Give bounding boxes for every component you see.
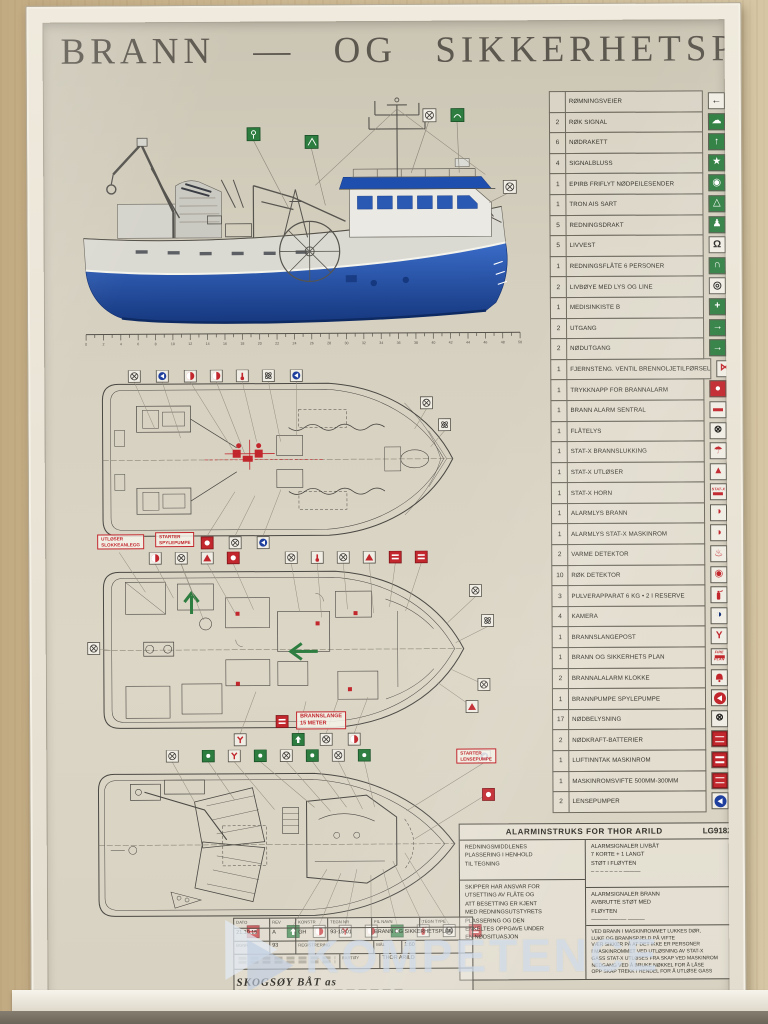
ship-profile-drawing: 0246810121416182022242628303234363840424… bbox=[57, 88, 550, 353]
legend-count: 2 bbox=[551, 339, 567, 359]
legend-row: 1ALARMLYS BRANN◑ bbox=[551, 503, 727, 525]
header-fil-navn: FIL NAVN bbox=[372, 918, 420, 927]
superstructure bbox=[315, 97, 496, 237]
svg-text:42: 42 bbox=[449, 341, 453, 345]
legend-row: 2RØK SIGNAL☁ bbox=[549, 112, 725, 134]
legend-label: PULVERAPPARAT 6 KG • 2 I RESERVE bbox=[568, 586, 704, 606]
alarm-cell-lifeboat-signals: ALARMSIGNALER LIVBÅT 7 KORTE + 1 LANGT S… bbox=[586, 839, 730, 888]
legend-count: 1 bbox=[551, 257, 567, 277]
deck-plan-main: UTLØSER SLOKKEANLEGG STARTER SPYLEPUMPE … bbox=[85, 550, 506, 748]
signal-flare-icon: ★ bbox=[708, 154, 725, 171]
legend-label: FLÅTELYS bbox=[568, 421, 704, 441]
legend-row: 6NØDRAKETT↑ bbox=[549, 132, 725, 154]
poster: BRANN — OG SIKKERHETSPLAN bbox=[42, 19, 729, 997]
emergency-light-icon: ⊗ bbox=[711, 710, 728, 727]
svg-text:4: 4 bbox=[120, 342, 122, 346]
header-mal: MÅL bbox=[374, 941, 402, 953]
legend-row: 1MASKINROMSVIFTE 500MM-300MM bbox=[552, 771, 728, 793]
legend-count: 1 bbox=[553, 751, 569, 771]
ais-sart-icon: △ bbox=[708, 195, 725, 212]
lifejacket-icon: Ω bbox=[709, 236, 726, 253]
legend-count: 1 bbox=[552, 525, 568, 545]
legend-row: 10RØK DETEKTOR◉ bbox=[551, 565, 727, 587]
header-fartoy: FARTØY bbox=[340, 954, 380, 968]
legend-count: 1 bbox=[550, 195, 566, 215]
legend-count: 2 bbox=[553, 792, 569, 812]
legend-label: NØDUTGANG bbox=[567, 338, 703, 358]
legend-row: 2BRANNALALARM KLOKKE bbox=[552, 668, 728, 690]
legend-row: 2NØDUTGANG→ bbox=[550, 338, 726, 360]
legend-row: 2UTGANG→ bbox=[550, 318, 726, 340]
statx-horn-icon: STAT-X bbox=[710, 483, 727, 500]
window-sill bbox=[12, 990, 768, 1012]
alarm-cell-skipper-responsibility: SKIPPER HAR ANSVAR FOR UTSETTING AV FLÅT… bbox=[460, 880, 586, 980]
lifebuoy-icon: ◎ bbox=[709, 278, 726, 295]
emergency-exit-icon: → bbox=[709, 339, 726, 356]
legend-label: BRANNSLANGEPOST bbox=[569, 627, 705, 647]
smoke-signal-icon: ☁ bbox=[708, 113, 725, 130]
legend-count: 1 bbox=[552, 463, 568, 483]
legend-row: 1STAT-X BRANNSLUKKING☂ bbox=[551, 441, 727, 463]
legend-label: UTGANG bbox=[567, 318, 703, 338]
legend-row: 1STAT-X UTLØSER▲ bbox=[551, 462, 727, 484]
bilge-pump-icon bbox=[711, 792, 728, 809]
svg-text:8: 8 bbox=[155, 342, 157, 346]
svg-text:26: 26 bbox=[310, 341, 314, 345]
legend-row: 2LENSEPUMPER bbox=[552, 791, 728, 813]
header-tegn-nr: TEGN NR bbox=[328, 918, 372, 927]
raft-light-icon: ⊗ bbox=[710, 422, 727, 439]
legend-count: 2 bbox=[551, 277, 567, 297]
legend-count: 2 bbox=[553, 730, 569, 750]
immersion-suit-icon: ♟ bbox=[708, 216, 725, 233]
leader-lines bbox=[134, 381, 445, 537]
legend-count: 1 bbox=[552, 442, 568, 462]
svg-text:12: 12 bbox=[188, 342, 192, 346]
legend-count: 1 bbox=[551, 380, 567, 400]
svg-text:20: 20 bbox=[258, 342, 262, 346]
legend-count: 1 bbox=[550, 174, 566, 194]
liferaft-icon: ∩ bbox=[709, 257, 726, 274]
svg-text:16: 16 bbox=[223, 342, 227, 346]
scale-ruler: 0246810121416182022242628303234363840424… bbox=[85, 332, 522, 346]
svg-text:30: 30 bbox=[345, 341, 349, 345]
smoke-detector-icon: ◉ bbox=[710, 566, 727, 583]
exit-sign-icon: → bbox=[709, 319, 726, 336]
callout-starter-lensepumpe: STARTER LENSEPUMPE bbox=[456, 748, 496, 764]
legend-label: RØMNINGSVEIER bbox=[566, 91, 702, 111]
legend-label: STAT-X UTLØSER bbox=[568, 462, 704, 482]
legend-count: 2 bbox=[552, 545, 568, 565]
legend-row: 1BRANN ALARM SENTRAL▬ bbox=[550, 400, 726, 422]
alarm-cell-engine-room-fire: VED BRANN I MASKINROMMET LUKKES DØR, LUK… bbox=[586, 925, 729, 979]
value-bgnr: 93 bbox=[270, 941, 296, 953]
builder-address-lines bbox=[234, 954, 340, 969]
header-rev: REV bbox=[270, 918, 296, 927]
fire-hose-station-icon: Y bbox=[711, 628, 728, 645]
emergency-battery-icon bbox=[711, 731, 728, 748]
legend-count: 1 bbox=[552, 422, 568, 442]
first-aid-kit-icon: + bbox=[709, 298, 726, 315]
fire-plan-icon: FIREPLAN bbox=[711, 648, 728, 665]
legend-row: 1REDNINGSFLÅTE 6 PERSONER∩ bbox=[550, 256, 726, 278]
value-tegn-nr: 93-15-01 bbox=[328, 928, 372, 940]
legend-row: 2LIVBØYE MED LYS OG LINE◎ bbox=[550, 277, 726, 299]
deck-plan-lower bbox=[84, 368, 485, 550]
value-fil-navn: BRANN OG SIKKERHETSPLAN bbox=[372, 928, 472, 941]
fuel-shutoff-valve-icon: ⋈ bbox=[717, 360, 730, 377]
alarm-instructions-box: ALARMINSTRUKS FOR THOR ARILD LG9182 REDN… bbox=[459, 822, 730, 980]
legend-row: 1MEDISINKISTE B+ bbox=[550, 297, 726, 319]
legend-row: 2VARME DETEKTOR♨ bbox=[551, 544, 727, 566]
legend-count: 3 bbox=[552, 586, 568, 606]
legend-row: 1BRANNPUMPE SPYLEPUMPE bbox=[552, 688, 728, 710]
title-block: DATO REV KONSTR TEGN NR FIL NAVN TEGN TY… bbox=[233, 917, 473, 997]
legend-count: 1 bbox=[552, 483, 568, 503]
fire-alarm-bell-icon bbox=[711, 669, 728, 686]
header-konstr: KONSTR bbox=[296, 918, 328, 927]
value-fartoy: THOR ARILD bbox=[380, 954, 472, 968]
value-dato: 21.10.15 bbox=[234, 929, 270, 941]
legend-row: 5REDNINGSDRAKT♟ bbox=[549, 215, 725, 237]
svg-text:36: 36 bbox=[397, 341, 401, 345]
svg-text:2: 2 bbox=[102, 342, 104, 346]
legend-label: ALARMLYS BRANN bbox=[568, 503, 704, 523]
legend-row: 1ALARMLYS STAT-X MASKINROM◑ bbox=[551, 524, 727, 546]
fire-alarm-panel-icon: ▬ bbox=[709, 401, 726, 418]
callout-utloser-slokkeanlegg: UTLØSER SLOKKEANLEGG bbox=[97, 534, 144, 550]
legend-count: 1 bbox=[553, 627, 569, 647]
svg-text:14: 14 bbox=[206, 342, 210, 346]
camera-icon: ◑ bbox=[711, 607, 728, 624]
air-intake-icon bbox=[711, 751, 728, 768]
legend-row: 1TRYKKNAPP FOR BRANNALARM● bbox=[550, 380, 726, 402]
legend-row: 1FJERNSTENG. VENTIL BRENNOLJETILFØRSEL⋈ bbox=[550, 359, 726, 381]
sill-shadow bbox=[0, 1011, 768, 1024]
legend-count: 10 bbox=[552, 566, 568, 586]
legend-label: NØDKRAFT-BATTERIER bbox=[569, 730, 705, 750]
legend-label: LUFTINNTAK MASKINROM bbox=[569, 750, 705, 770]
legend-label: REDNINGSDRAKT bbox=[566, 215, 702, 235]
legend-label: BRANN OG SIKKERHETS PLAN bbox=[569, 647, 705, 667]
legend-label: KAMERA bbox=[569, 606, 705, 626]
legend-row: 1LUFTINNTAK MASKINROM bbox=[552, 750, 728, 772]
svg-text:38: 38 bbox=[414, 341, 418, 345]
legend-count: 1 bbox=[551, 360, 567, 380]
legend-label: LIVBØYE MED LYS OG LINE bbox=[567, 277, 703, 297]
engine-room-fan-icon bbox=[711, 772, 728, 789]
legend-count: 1 bbox=[551, 298, 567, 318]
legend-count bbox=[550, 92, 566, 112]
callout-brannslange: BRANNSLANGE 15 METER bbox=[296, 711, 346, 729]
legend-row: 1STAT-X HORNSTAT-X bbox=[551, 482, 727, 504]
legend-count: 5 bbox=[551, 236, 567, 256]
legend-row: 1TRON AIS SART△ bbox=[549, 194, 725, 216]
heat-detector-icon: ♨ bbox=[710, 545, 727, 562]
header-dato: DATO bbox=[234, 919, 270, 928]
legend-label: TRON AIS SART bbox=[566, 194, 702, 214]
legend-label: FJERNSTENG. VENTIL BRENNOLJETILFØRSEL bbox=[567, 359, 710, 379]
legend-row: 17NØDBELYSNING⊗ bbox=[552, 709, 728, 731]
statx-system bbox=[205, 439, 325, 470]
statx-release-icon: ▲ bbox=[710, 463, 727, 480]
legend-label: RØK DETEKTOR bbox=[568, 565, 704, 585]
alarm-cell-fire-signals: ALARMSIGNALER BRANN AVBRUTTE STØT MED FL… bbox=[586, 887, 729, 926]
statx-extinguishing-icon: ☂ bbox=[710, 442, 727, 459]
svg-text:34: 34 bbox=[379, 341, 383, 345]
builder-name: SKOGSØY BÅT as bbox=[236, 976, 336, 989]
legend-label: NØDRAKETT bbox=[566, 133, 702, 153]
svg-text:50: 50 bbox=[518, 340, 522, 344]
legend-row: 1BRANNSLANGEPOSTY bbox=[552, 627, 728, 649]
legend-table: RØMNINGSVEIER←2RØK SIGNAL☁6NØDRAKETT↑4SI… bbox=[549, 91, 729, 813]
fire-pump-icon bbox=[711, 689, 728, 706]
svg-text:40: 40 bbox=[431, 341, 435, 345]
legend-count: 17 bbox=[553, 710, 569, 730]
svg-text:44: 44 bbox=[466, 341, 470, 345]
legend-label: MASKINROMSVIFTE 500MM-300MM bbox=[569, 771, 705, 791]
epirb-icon: ◉ bbox=[708, 175, 725, 192]
legend-row: 1FLÅTELYS⊗ bbox=[551, 421, 727, 443]
svg-text:32: 32 bbox=[362, 341, 366, 345]
legend-count: 1 bbox=[552, 504, 568, 524]
powder-extinguisher-icon bbox=[710, 586, 727, 603]
legend-count: 4 bbox=[550, 154, 566, 174]
value-mal: 1:60 bbox=[402, 941, 472, 953]
alarm-cell-placement: REDNINGSMIDDLENES PLASSERING I HENHOLD T… bbox=[460, 840, 585, 881]
legend-label: LENSEPUMPER bbox=[569, 792, 705, 812]
legend-rows: RØMNINGSVEIER←2RØK SIGNAL☁6NØDRAKETT↑4SI… bbox=[549, 91, 729, 813]
svg-text:24: 24 bbox=[292, 341, 296, 345]
page-title: BRANN — OG SIKKERHETSPLAN bbox=[60, 27, 720, 73]
value-konstr: GH bbox=[296, 928, 328, 940]
legend-row: 1BRANN OG SIKKERHETS PLANFIREPLAN bbox=[552, 647, 728, 669]
svg-text:46: 46 bbox=[483, 340, 487, 344]
legend-row: 4SIGNALBLUSS★ bbox=[549, 153, 725, 175]
legend-count: 1 bbox=[553, 689, 569, 709]
rocket-flare-icon: ↑ bbox=[708, 133, 725, 150]
legend-row: 1EPIRB FRIFLYT NØDPEILESENDER◉ bbox=[549, 174, 725, 196]
svg-text:18: 18 bbox=[240, 342, 244, 346]
legend-label: BRANN ALARM SENTRAL bbox=[567, 400, 703, 420]
legend-count: 4 bbox=[553, 607, 569, 627]
legend-label: TRYKKNAPP FOR BRANNALARM bbox=[567, 380, 703, 400]
alarm-box-header: ALARMINSTRUKS FOR THOR ARILD LG9182 bbox=[460, 823, 730, 840]
legend-count: 5 bbox=[550, 216, 566, 236]
value-rev: A bbox=[270, 928, 296, 940]
alarm-box-title: ALARMINSTRUKS FOR THOR ARILD bbox=[466, 826, 703, 836]
svg-text:28: 28 bbox=[327, 341, 331, 345]
header-registrering: REGISTRERING bbox=[296, 941, 374, 953]
legend-count: 2 bbox=[551, 319, 567, 339]
legend-label: LIVVEST bbox=[567, 235, 703, 255]
legend-row: 3PULVERAPPARAT 6 KG • 2 I RESERVE bbox=[551, 585, 727, 607]
legend-label: STAT-X HORN bbox=[568, 483, 704, 503]
svg-text:48: 48 bbox=[501, 340, 505, 344]
legend-count: 1 bbox=[553, 648, 569, 668]
legend-label: VARME DETEKTOR bbox=[568, 544, 704, 564]
legend-label: RØK SIGNAL bbox=[566, 112, 702, 132]
legend-count: 2 bbox=[550, 113, 566, 133]
escape-route-arrow-icon: ← bbox=[708, 92, 725, 109]
deck-plan-shelter: STARTER LENSEPUMPE bbox=[74, 748, 515, 940]
header-tegn-type: TEGN TYPE bbox=[420, 918, 472, 927]
legend-row: 4KAMERA◑ bbox=[552, 606, 728, 628]
vessel-registration: LG9182 bbox=[703, 826, 730, 835]
legend-label: ALARMLYS STAT-X MASKINROM bbox=[568, 524, 704, 544]
callout-starter-spylepumpe: STARTER SPYLEPUMPE bbox=[155, 532, 194, 548]
legend-row: RØMNINGSVEIER← bbox=[549, 91, 725, 113]
legend-row: 5LIVVESTΩ bbox=[550, 235, 726, 257]
fire-alarm-button-icon: ● bbox=[709, 381, 726, 398]
legend-label: MEDISINKISTE B bbox=[567, 297, 703, 317]
picture-frame: BRANN — OG SIKKERHETSPLAN bbox=[25, 2, 746, 1016]
legend-label: SIGNALBLUSS bbox=[566, 153, 702, 173]
legend-count: 6 bbox=[550, 133, 566, 153]
svg-text:6: 6 bbox=[137, 342, 139, 346]
fire-alarm-light-icon: ◑ bbox=[710, 504, 727, 521]
legend-row: 2NØDKRAFT-BATTERIER bbox=[552, 730, 728, 752]
legend-count: 1 bbox=[551, 401, 567, 421]
legend-label: BRANNALALARM KLOKKE bbox=[569, 668, 705, 688]
legend-label: REDNINGSFLÅTE 6 PERSONER bbox=[567, 256, 703, 276]
legend-label: EPIRB FRIFLYT NØDPEILESENDER bbox=[566, 174, 702, 194]
statx-alarm-light-icon: ◑ bbox=[710, 525, 727, 542]
legend-label: BRANNPUMPE SPYLEPUMPE bbox=[569, 689, 705, 709]
header-bgnr: BGNR. bbox=[234, 942, 270, 954]
plan-symbols bbox=[87, 550, 494, 746]
legend-label: NØDBELYSNING bbox=[569, 709, 705, 729]
legend-count: 2 bbox=[553, 669, 569, 689]
svg-text:22: 22 bbox=[275, 342, 279, 346]
aft-deckhouse-and-funnel bbox=[117, 181, 221, 239]
legend-count: 1 bbox=[553, 772, 569, 792]
svg-text:0: 0 bbox=[85, 343, 87, 347]
svg-text:10: 10 bbox=[171, 342, 175, 346]
legend-label: STAT-X BRANNSLUKKING bbox=[568, 441, 704, 461]
